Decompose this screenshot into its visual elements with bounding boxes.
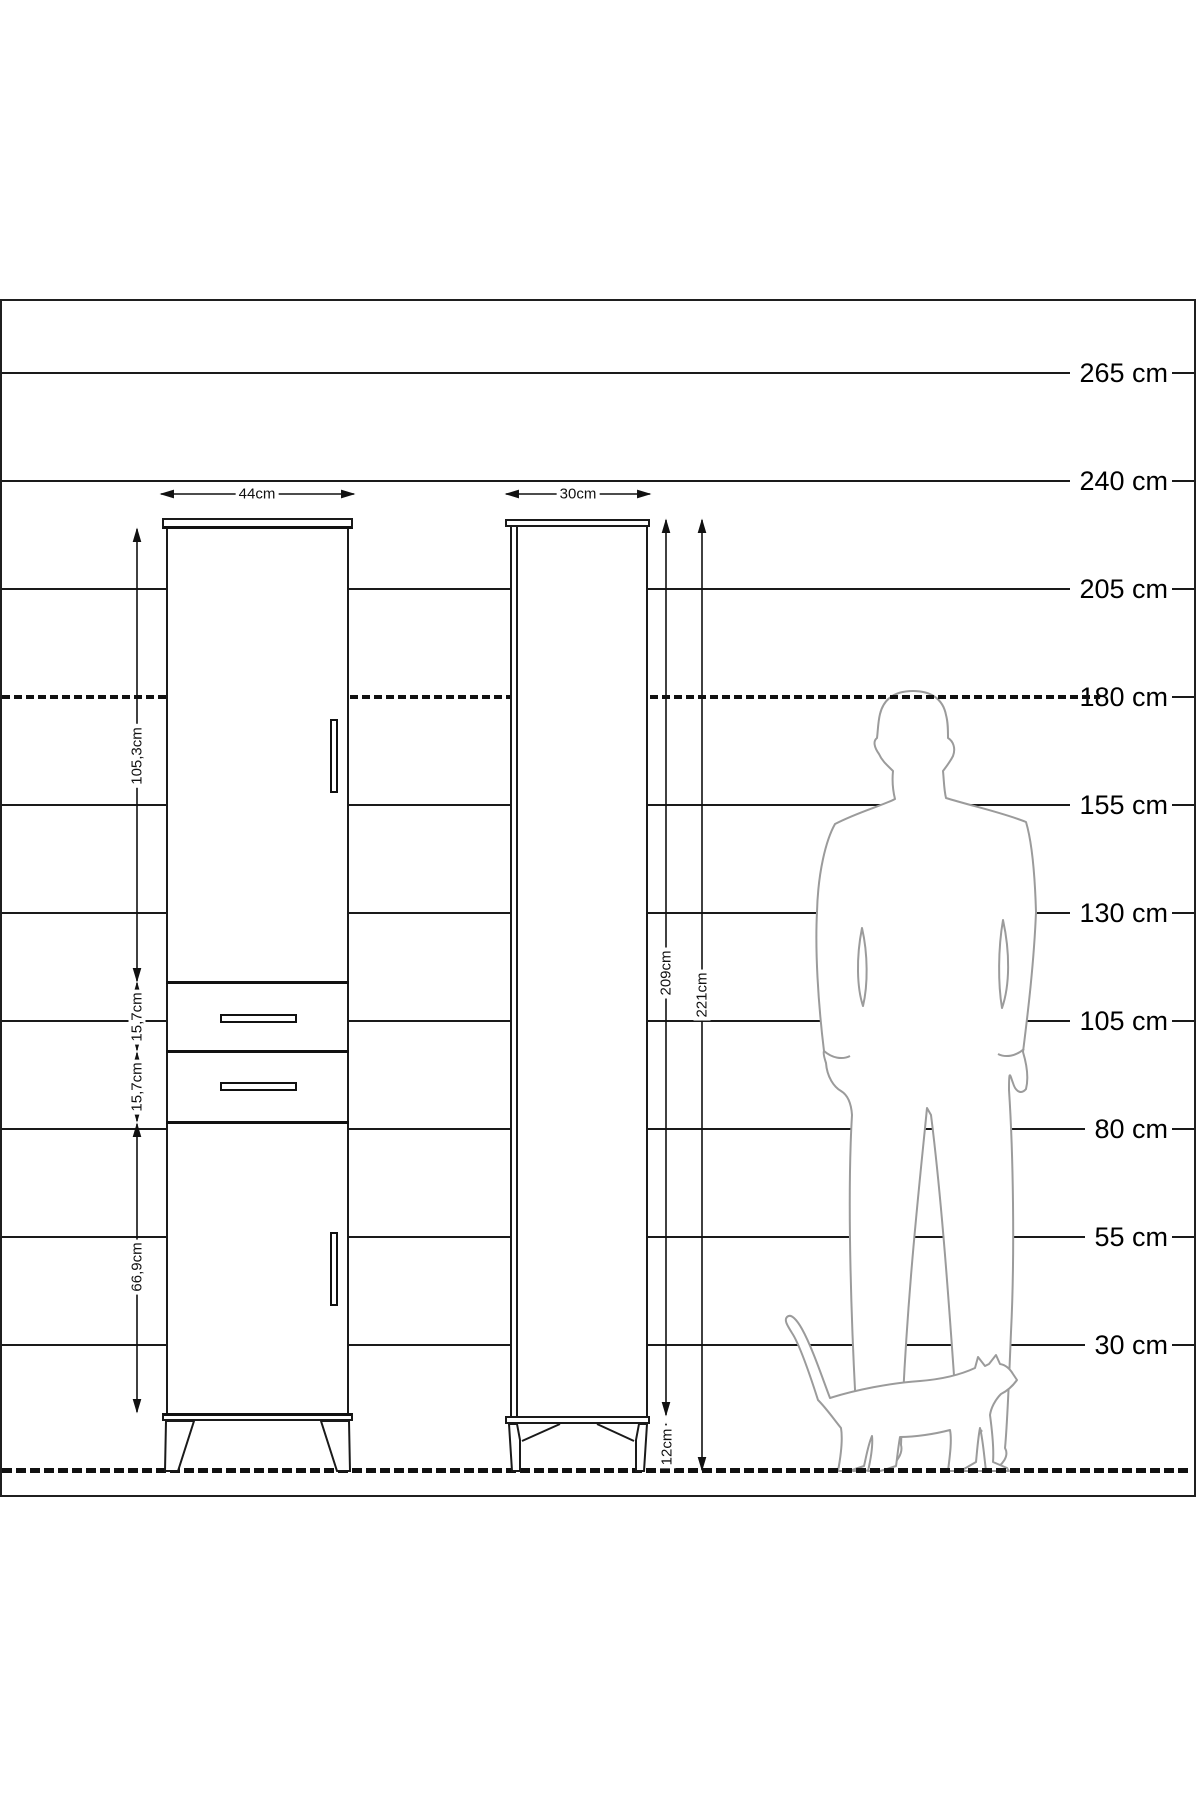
- ruler-tick: [1172, 372, 1194, 374]
- upper-door-handle: [330, 719, 338, 793]
- front-cabinet-top-board: [162, 518, 353, 529]
- ruler-label: 30 cm: [1085, 1329, 1172, 1361]
- leg-height-label: 12cm: [659, 1426, 676, 1469]
- total-height-label: 221cm: [694, 969, 711, 1020]
- ruler-tick: [1172, 804, 1194, 806]
- ruler-label: 105 cm: [1070, 1005, 1172, 1037]
- side-cabinet-body: [510, 527, 648, 1416]
- ruler-tick: [1172, 1020, 1194, 1022]
- ruler-tick: [1172, 588, 1194, 590]
- lower-door-height-label: 66,9cm: [129, 1239, 146, 1294]
- ruler-tick: [1172, 1344, 1194, 1346]
- front-cabinet-divider-2: [166, 1050, 349, 1053]
- ruler-label: 240 cm: [1070, 465, 1172, 497]
- upper-door-height-label: 105,3cm: [129, 724, 146, 788]
- lower-door-handle: [330, 1232, 338, 1306]
- ruler-tick: [1172, 912, 1194, 914]
- front-cabinet-bottom-board: [162, 1413, 353, 1421]
- side-cabinet-top-board: [505, 519, 650, 527]
- side-cabinet-door-edge: [516, 527, 518, 1416]
- ruler-label: 80 cm: [1085, 1113, 1172, 1145]
- ruler-tick: [1172, 1128, 1194, 1130]
- ruler-tick: [1172, 1236, 1194, 1238]
- drawer1-handle: [220, 1014, 297, 1023]
- dimension-diagram: 265 cm 240 cm 205 cm 180 cm 155 cm 130 c…: [0, 0, 1200, 1800]
- ruler-tick: [1172, 696, 1194, 698]
- drawer1-height-label: 15,7cm: [129, 989, 146, 1044]
- front-cabinet-divider-1: [166, 981, 349, 984]
- ruler-line: [2, 480, 1070, 482]
- front-cabinet-divider-3: [166, 1121, 349, 1124]
- ruler-line: [2, 372, 1070, 374]
- ruler-tick: [1172, 480, 1194, 482]
- side-cabinet-bottom-board: [505, 1416, 650, 1424]
- ruler-label: 130 cm: [1070, 897, 1172, 929]
- ruler-label: 205 cm: [1070, 573, 1172, 605]
- ruler-row-265: 265 cm: [2, 357, 1194, 389]
- ruler-label: 265 cm: [1070, 357, 1172, 389]
- ruler-label: 155 cm: [1070, 789, 1172, 821]
- ruler-label: 55 cm: [1085, 1221, 1172, 1253]
- front-width-label: 44cm: [236, 486, 279, 503]
- side-depth-label: 30cm: [557, 486, 600, 503]
- ground-line: [2, 1468, 1192, 1473]
- front-cabinet-body: [166, 529, 349, 1413]
- drawer2-height-label: 15,7cm: [129, 1059, 146, 1114]
- drawer2-handle: [220, 1082, 297, 1091]
- body-height-label: 209cm: [658, 947, 675, 998]
